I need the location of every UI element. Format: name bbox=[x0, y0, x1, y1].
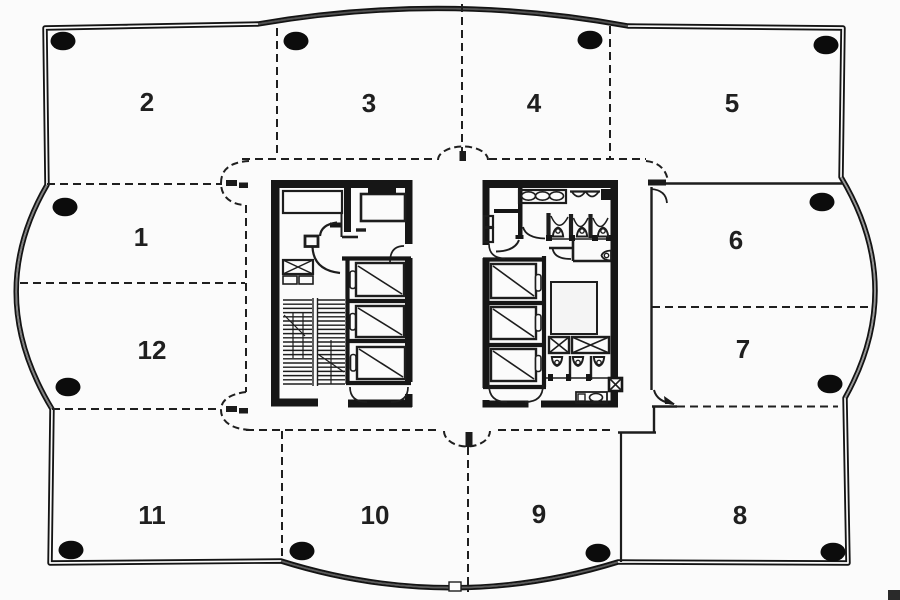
svg-text:8: 8 bbox=[733, 500, 747, 530]
svg-text:9: 9 bbox=[532, 499, 546, 529]
svg-text:5: 5 bbox=[725, 88, 739, 118]
svg-text:3: 3 bbox=[362, 88, 376, 118]
svg-text:6: 6 bbox=[729, 225, 743, 255]
svg-text:11: 11 bbox=[138, 500, 166, 530]
svg-text:1: 1 bbox=[134, 222, 148, 252]
svg-text:12: 12 bbox=[138, 335, 167, 365]
svg-text:10: 10 bbox=[361, 500, 390, 530]
svg-text:7: 7 bbox=[736, 334, 750, 364]
svg-text:2: 2 bbox=[140, 87, 154, 117]
svg-text:4: 4 bbox=[527, 88, 542, 118]
